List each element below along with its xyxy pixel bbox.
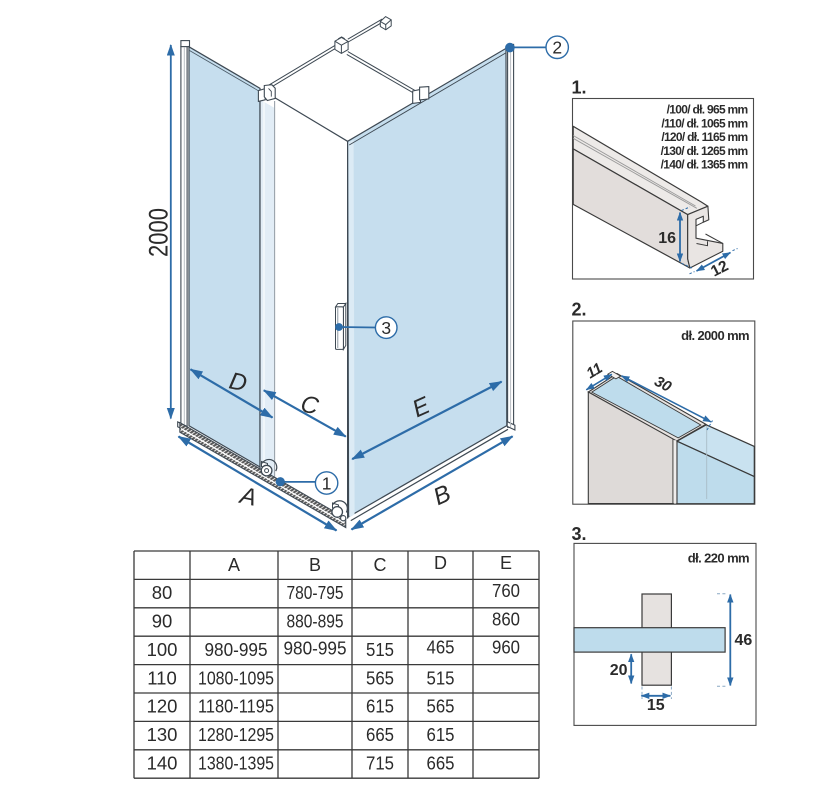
svg-text:130: 130 xyxy=(147,724,178,745)
svg-text:1080-1095: 1080-1095 xyxy=(198,668,274,689)
svg-text:515: 515 xyxy=(427,668,455,689)
svg-text:A: A xyxy=(228,555,240,575)
svg-text:515: 515 xyxy=(366,639,394,660)
svg-text:11: 11 xyxy=(583,360,605,383)
svg-text:615: 615 xyxy=(427,724,455,745)
svg-text:16: 16 xyxy=(658,230,676,247)
svg-text:2000: 2000 xyxy=(144,208,174,257)
svg-text:/110/ dł. 1065 mm: /110/ dł. 1065 mm xyxy=(661,116,747,130)
svg-text:D: D xyxy=(434,553,447,573)
svg-text:2.: 2. xyxy=(572,300,587,320)
svg-text:15: 15 xyxy=(647,697,665,714)
svg-text:/130/ dł. 1265 mm: /130/ dł. 1265 mm xyxy=(661,144,748,158)
svg-text:980-995: 980-995 xyxy=(205,639,268,660)
svg-text:1.: 1. xyxy=(572,78,587,98)
svg-text:110: 110 xyxy=(147,668,177,689)
svg-text:140: 140 xyxy=(147,753,178,774)
svg-text:465: 465 xyxy=(427,637,455,658)
svg-text:C: C xyxy=(298,391,321,421)
svg-text:1380-1395: 1380-1395 xyxy=(198,753,274,774)
svg-text:3.: 3. xyxy=(572,524,587,544)
svg-text:1280-1295: 1280-1295 xyxy=(198,724,274,745)
svg-text:E: E xyxy=(500,553,512,573)
svg-text:565: 565 xyxy=(427,696,455,717)
svg-text:880-895: 880-895 xyxy=(287,611,344,632)
svg-text:760: 760 xyxy=(492,580,520,601)
svg-text:860: 860 xyxy=(492,609,520,630)
svg-text:780-795: 780-795 xyxy=(287,582,344,603)
svg-text:715: 715 xyxy=(366,753,394,774)
svg-text:960: 960 xyxy=(492,637,520,658)
svg-text:A: A xyxy=(236,482,259,512)
svg-text:2: 2 xyxy=(552,38,562,58)
svg-text:980-995: 980-995 xyxy=(284,638,347,659)
svg-text:12: 12 xyxy=(708,257,731,280)
svg-text:B: B xyxy=(309,555,321,575)
svg-text:665: 665 xyxy=(427,753,455,774)
svg-text:665: 665 xyxy=(366,724,394,745)
svg-text:615: 615 xyxy=(366,696,394,717)
svg-text:B: B xyxy=(429,480,455,511)
svg-text:1180-1195: 1180-1195 xyxy=(198,696,274,717)
svg-text:dł. 220 mm: dł. 220 mm xyxy=(688,551,749,566)
svg-text:/140/ dł. 1365 mm: /140/ dł. 1365 mm xyxy=(661,158,748,172)
svg-text:C: C xyxy=(374,555,387,575)
svg-text:565: 565 xyxy=(366,668,394,689)
svg-text:46: 46 xyxy=(735,632,753,649)
svg-text:dł. 2000 mm: dł. 2000 mm xyxy=(681,328,749,343)
svg-text:80: 80 xyxy=(152,582,173,603)
svg-text:3: 3 xyxy=(381,318,391,338)
svg-text:100: 100 xyxy=(147,639,178,660)
svg-text:/100/ dł. 965 mm: /100/ dł. 965 mm xyxy=(667,103,748,117)
svg-text:/120/ dł. 1165 mm: /120/ dł. 1165 mm xyxy=(661,130,747,144)
svg-text:1: 1 xyxy=(322,473,332,493)
svg-text:90: 90 xyxy=(152,611,173,632)
svg-text:20: 20 xyxy=(610,662,628,679)
svg-text:120: 120 xyxy=(147,696,178,717)
